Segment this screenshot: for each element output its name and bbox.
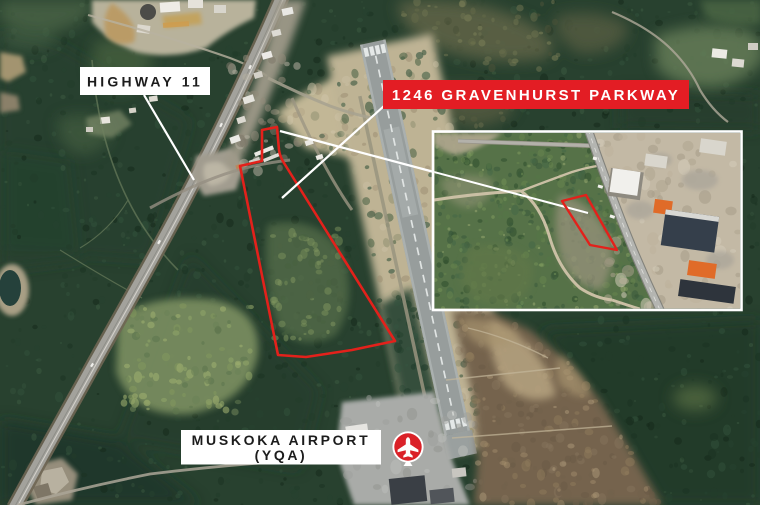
svg-text:HIGHWAY 11: HIGHWAY 11: [87, 74, 203, 90]
svg-text:1246 GRAVENHURST PARKWAY: 1246 GRAVENHURST PARKWAY: [392, 87, 680, 104]
svg-text:MUSKOKA AIRPORT: MUSKOKA AIRPORT: [192, 432, 371, 448]
svg-text:(YQA): (YQA): [255, 447, 308, 463]
